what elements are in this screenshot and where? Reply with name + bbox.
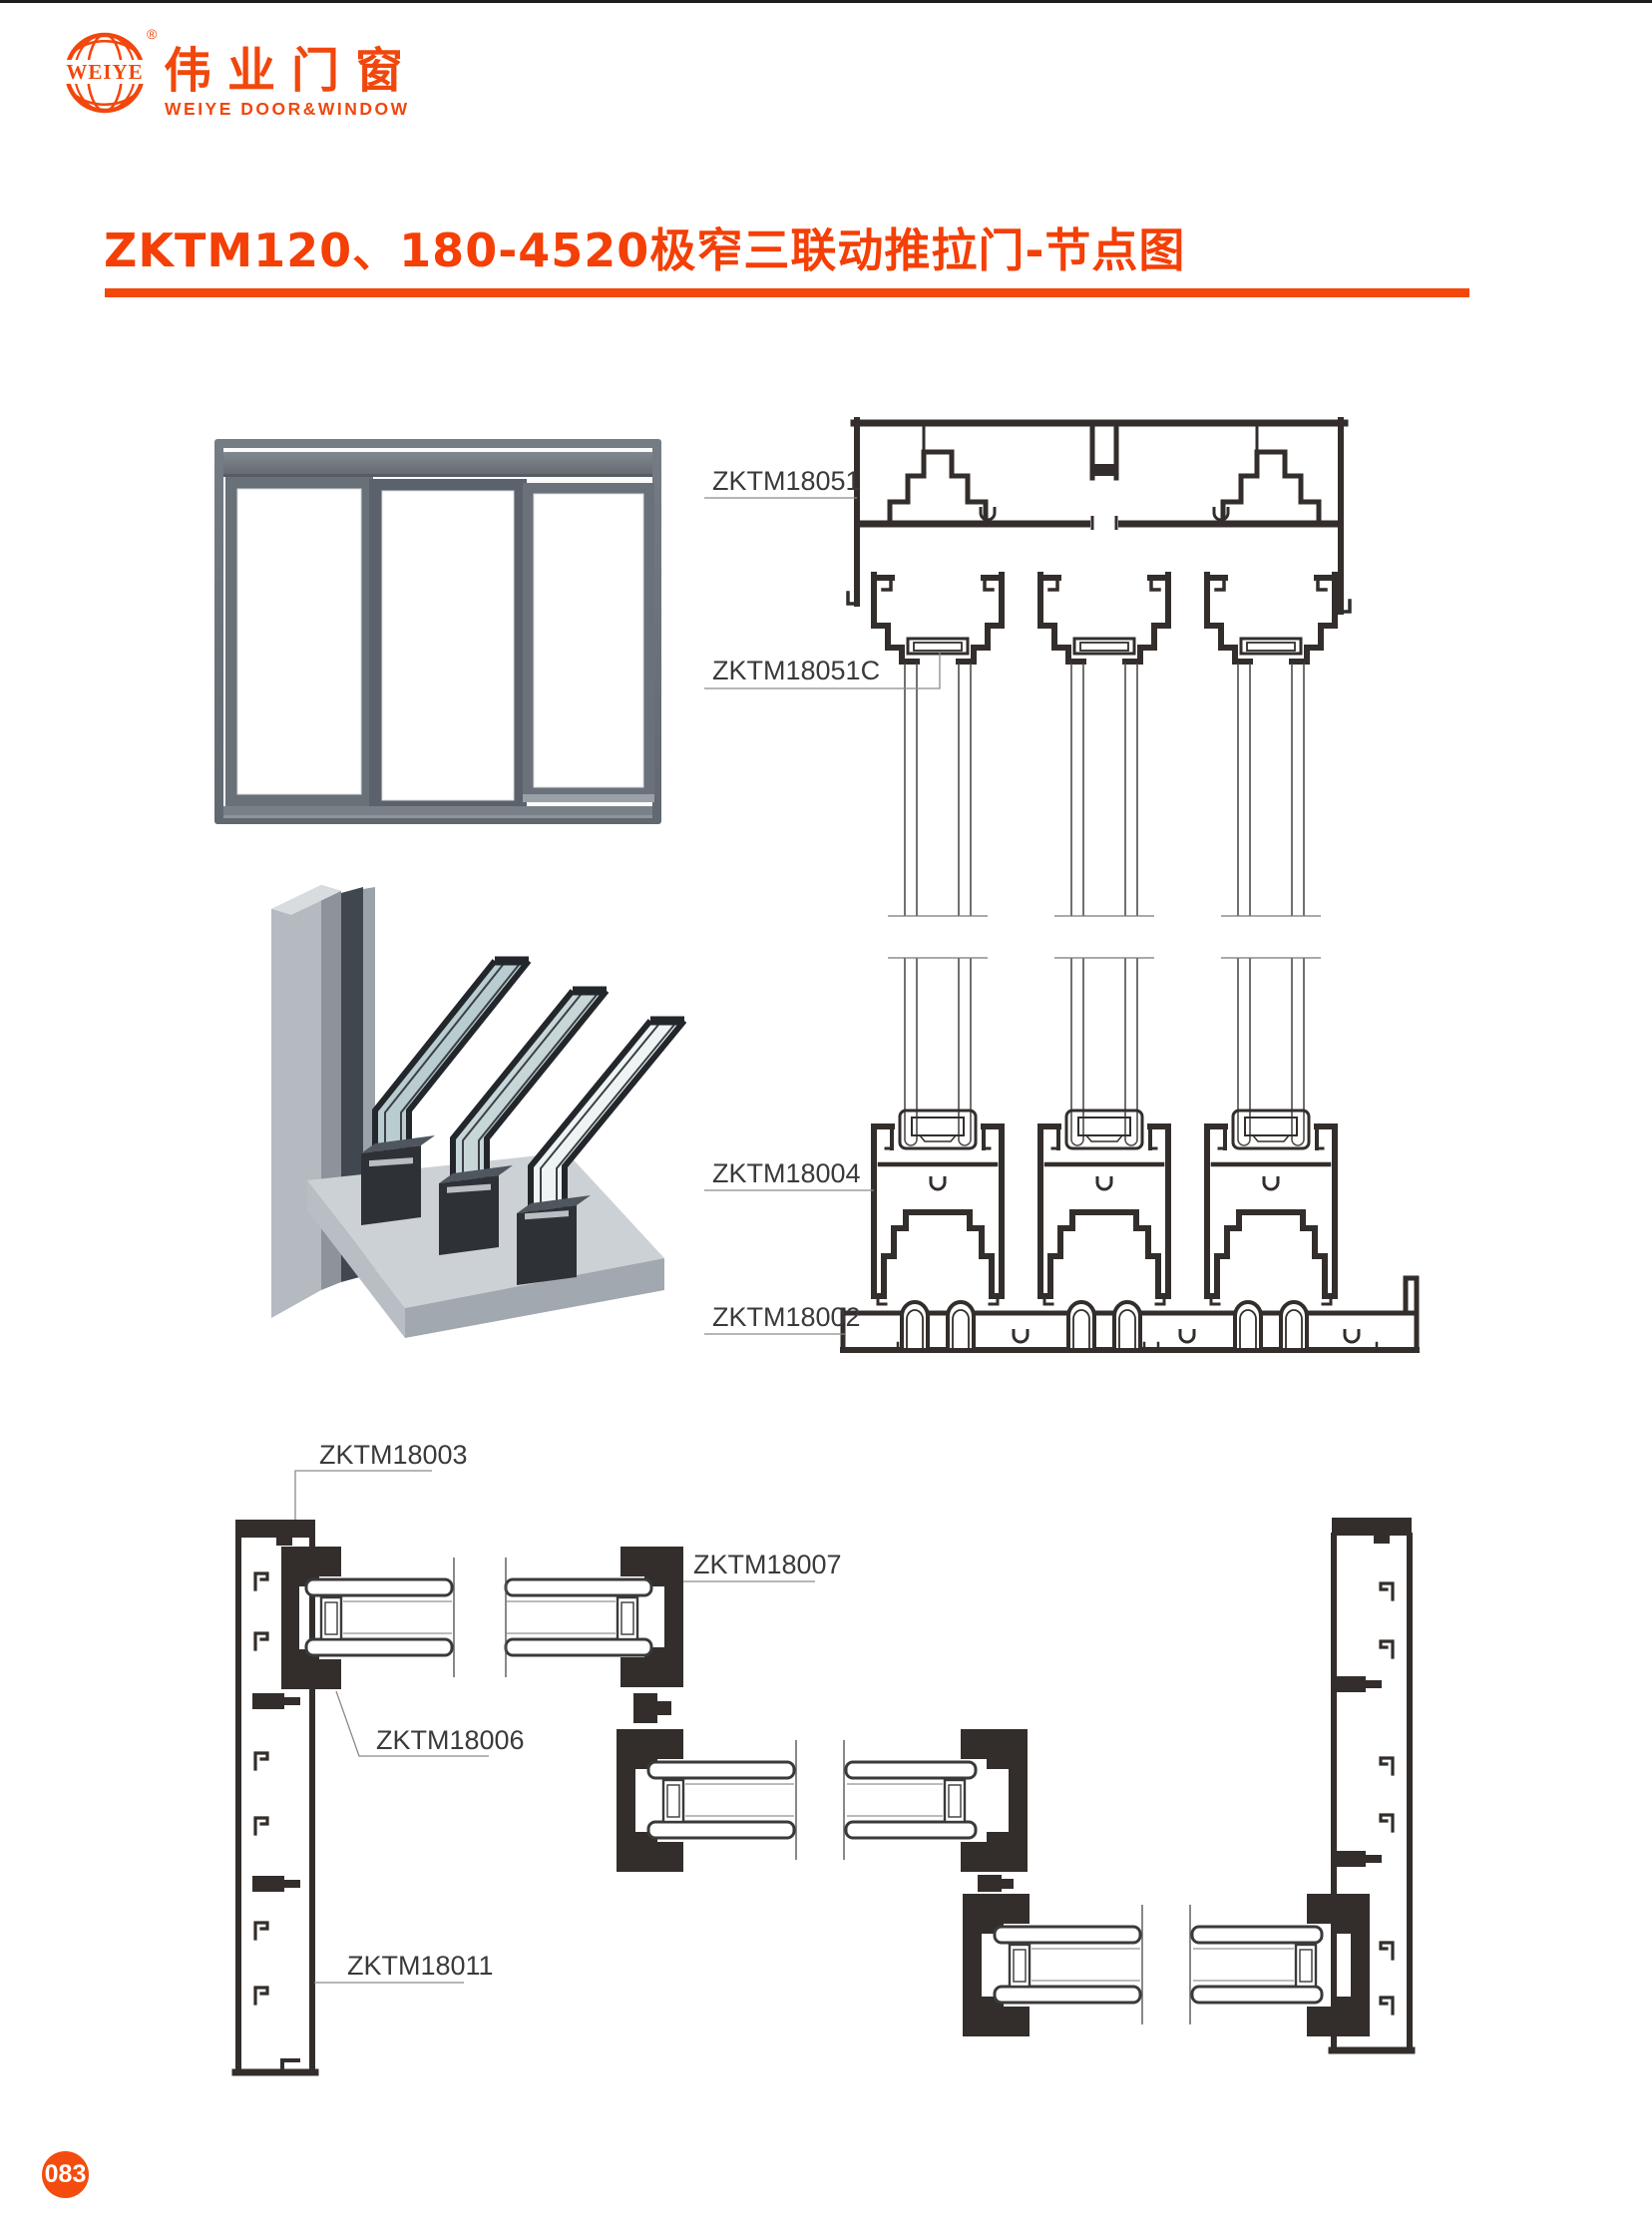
page-title: ZKTM120、180-4520极窄三联动推拉门-节点图: [104, 215, 1185, 280]
door-render: [214, 439, 661, 824]
logo-name-en: WEIYE DOOR&WINDOW: [165, 99, 410, 119]
panel-column-3: [1207, 575, 1335, 1348]
panel-column-1: [874, 575, 1002, 1348]
catalog-page: WEIYE ® 伟业门窗 WEIYE DOOR&WINDOW ZKTM120、1…: [0, 0, 1652, 2239]
left-jamb-profile: [235, 1520, 315, 2072]
panel-column-2: [1040, 575, 1168, 1348]
interlock-connector-1: [633, 1693, 671, 1723]
leader-zktm18003: [295, 1471, 432, 1520]
door-panel-left: [225, 477, 373, 806]
profile-cutaway-render: [257, 861, 686, 1340]
label-zktm18006: ZKTM18006: [376, 1725, 525, 1755]
door-panel-right: [523, 483, 654, 802]
logo-registered-mark: ®: [147, 26, 158, 42]
glass-panel-2: [648, 1740, 976, 1860]
door-header-track: [223, 452, 652, 476]
label-zktm18051: ZKTM18051: [712, 466, 861, 496]
label-zktm18011: ZKTM18011: [347, 1951, 494, 1981]
horizontal-section-drawing: ZKTM18003 ZKTM18007 ZKTM18006 ZKTM18011: [224, 1440, 1466, 2118]
right-jamb-profile: [1332, 1518, 1412, 2050]
glass-panel-1: [306, 1558, 651, 1677]
interlock-row2-right: [961, 1729, 1028, 1872]
label-zktm18002: ZKTM18002: [712, 1302, 861, 1332]
label-zktm18007: ZKTM18007: [693, 1550, 842, 1579]
logo-globe-text: WEIYE: [66, 60, 143, 84]
interlock-connector-2: [978, 1875, 1014, 1892]
vertical-section-drawing: ZKTM18051 ZKTM18051C ZKTM18004 ZKTM18002: [688, 412, 1427, 1360]
logo-name-cn: 伟业门窗: [164, 43, 419, 99]
title-rule: [105, 288, 1469, 297]
label-zktm18003: ZKTM18003: [319, 1440, 468, 1470]
page-number-badge: 083: [42, 2151, 89, 2198]
weiye-logo: WEIYE ® 伟业门窗 WEIYE DOOR&WINDOW: [50, 17, 479, 125]
label-zktm18004: ZKTM18004: [712, 1158, 861, 1188]
glass-panel-3: [995, 1905, 1322, 2024]
door-bottom-track: [223, 806, 652, 815]
label-zktm18051c: ZKTM18051C: [712, 656, 880, 685]
door-panel-middle: [369, 479, 527, 812]
